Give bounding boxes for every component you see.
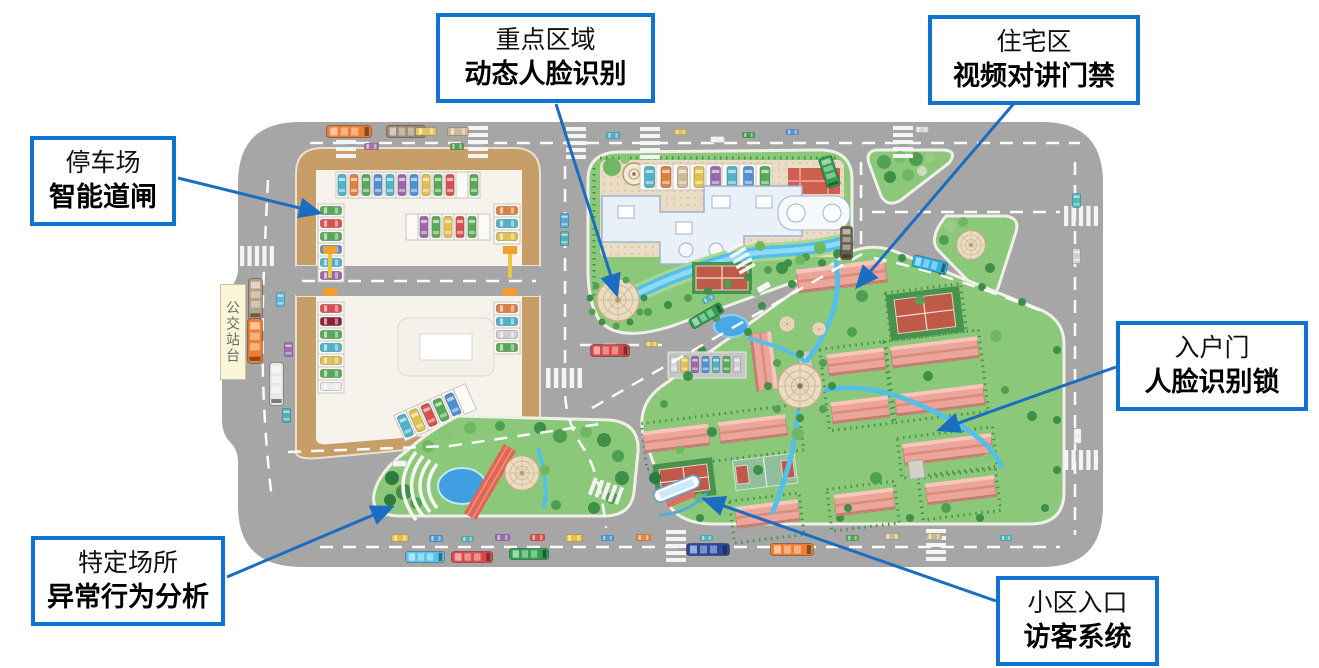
- bus-stop-sign: 公交站台: [220, 284, 246, 380]
- callout-community-entrance-feature: 访客系统: [1004, 620, 1151, 655]
- park-pavilion: [505, 456, 540, 491]
- callout-community-entrance-title: 小区入口: [1004, 587, 1151, 620]
- callout-residential: 住宅区 视频对讲门禁: [928, 15, 1140, 105]
- callout-parking: 停车场 智能道闸: [30, 136, 176, 226]
- callout-parking-title: 停车场: [38, 147, 168, 180]
- callout-residential-feature: 视频对讲门禁: [936, 59, 1132, 94]
- callout-specific-place-feature: 异常行为分析: [39, 580, 217, 615]
- callout-key-area-feature: 动态人脸识别: [444, 57, 647, 92]
- callout-entry-door: 入户门 人脸识别锁: [1116, 321, 1308, 411]
- callout-specific-place: 特定场所 异常行为分析: [31, 536, 225, 626]
- callout-specific-place-title: 特定场所: [39, 547, 217, 580]
- callout-entry-door-feature: 人脸识别锁: [1124, 365, 1300, 400]
- callout-parking-feature: 智能道闸: [38, 180, 168, 215]
- callout-community-entrance: 小区入口 访客系统: [996, 576, 1159, 666]
- callout-key-area: 重点区域 动态人脸识别: [436, 13, 655, 103]
- callout-residential-title: 住宅区: [936, 26, 1132, 59]
- callout-entry-door-title: 入户门: [1124, 332, 1300, 365]
- bus: [327, 126, 372, 138]
- callout-key-area-title: 重点区域: [444, 24, 647, 57]
- smart-community-diagram: 公交站台 停车场 智能道闸 重点区域 动态人脸识别 住宅区 视频对讲门禁 入户门…: [0, 0, 1319, 668]
- parking-lot-block: [296, 148, 540, 458]
